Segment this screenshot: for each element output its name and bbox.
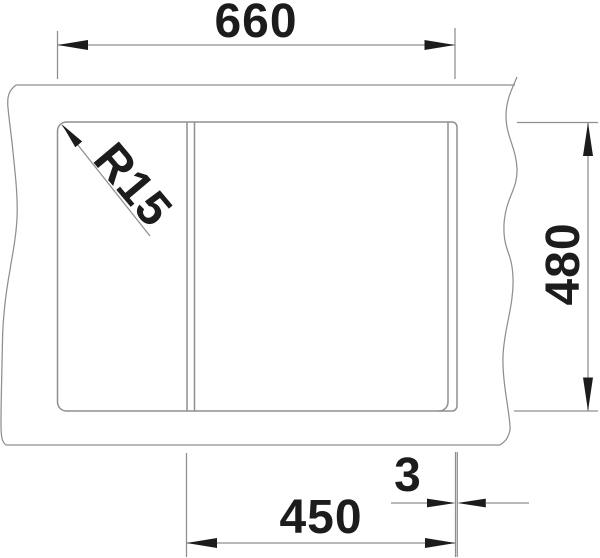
dimension-rim-gap: 3 [391,449,529,507]
radius-label: R15 [83,133,182,237]
countertop-outline [1,77,517,445]
dim-label-overall-width: 660 [214,0,297,48]
dim-label-overall-depth: 480 [537,222,590,305]
dimension-overall-depth: 480 [514,123,598,412]
countertop-left-break-line [1,85,17,445]
radius-callout: R15 [62,125,182,238]
dim-arrowhead-left-icon [58,40,89,50]
dim-arrowhead-left-icon [427,499,456,508]
dim-arrowhead-top-icon [583,123,593,157]
radius-arrowhead-icon [62,125,82,148]
sink-installation-drawing: R15 660 480 450 3 [0,0,600,558]
dim-arrowhead-left-icon [187,538,218,548]
dim-arrowhead-right-icon [425,40,456,50]
dimension-overall-width: 660 [58,0,456,79]
dim-arrowhead-bottom-icon [583,378,593,412]
countertop-right-break-line [500,77,517,445]
bowl-inner-right-edge [439,122,448,411]
dim-label-rim-gap: 3 [394,449,422,502]
dim-arrowhead-right-icon [457,499,486,508]
dim-label-bowl-width: 450 [279,491,362,544]
dim-arrowhead-right-icon [425,538,456,548]
